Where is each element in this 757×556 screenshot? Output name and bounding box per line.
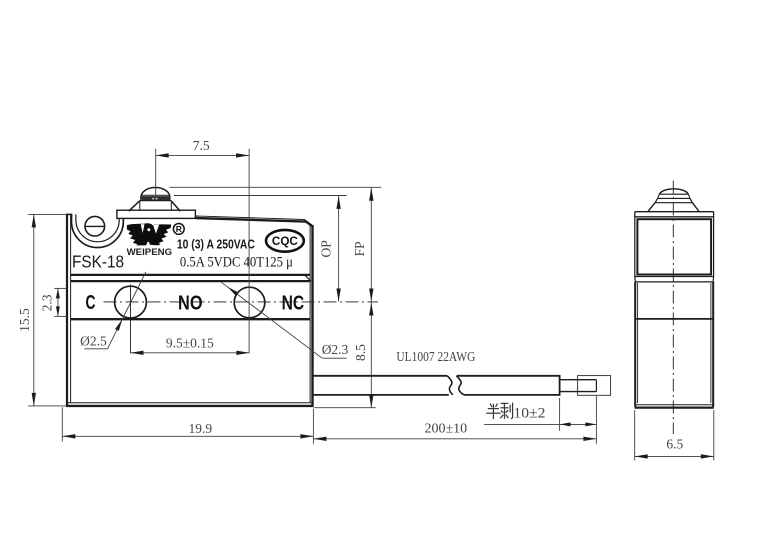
- svg-text:10 (3) A 250VAC: 10 (3) A 250VAC: [177, 236, 255, 251]
- svg-text:OP: OP: [319, 240, 334, 257]
- svg-text:C: C: [86, 292, 96, 314]
- svg-text:15.5: 15.5: [17, 308, 32, 332]
- svg-text:WEIPENG: WEIPENG: [127, 247, 173, 257]
- svg-text:Ø2.5: Ø2.5: [80, 334, 107, 349]
- svg-text:0.5A 5VDC 40T125 μ: 0.5A 5VDC 40T125 μ: [180, 254, 293, 270]
- svg-text:200±10: 200±10: [424, 422, 467, 437]
- svg-text:UL1007 22AWG: UL1007 22AWG: [396, 349, 475, 364]
- svg-text:2.3: 2.3: [40, 294, 55, 311]
- svg-text:FSK-18: FSK-18: [72, 251, 124, 271]
- svg-text:NC: NC: [282, 292, 305, 314]
- svg-text:NO: NO: [178, 292, 203, 314]
- svg-text:9.5±0.15: 9.5±0.15: [166, 336, 214, 351]
- svg-text:8.5: 8.5: [353, 344, 368, 361]
- svg-text:CQC: CQC: [272, 236, 298, 248]
- svg-text:FP: FP: [352, 241, 367, 256]
- svg-text:19.9: 19.9: [188, 421, 212, 436]
- svg-text:Ø2.3: Ø2.3: [322, 342, 349, 357]
- svg-text:R: R: [176, 224, 182, 234]
- svg-text:6.5: 6.5: [666, 436, 683, 451]
- svg-text:7.5: 7.5: [193, 138, 210, 153]
- svg-text:10±2: 10±2: [513, 406, 545, 422]
